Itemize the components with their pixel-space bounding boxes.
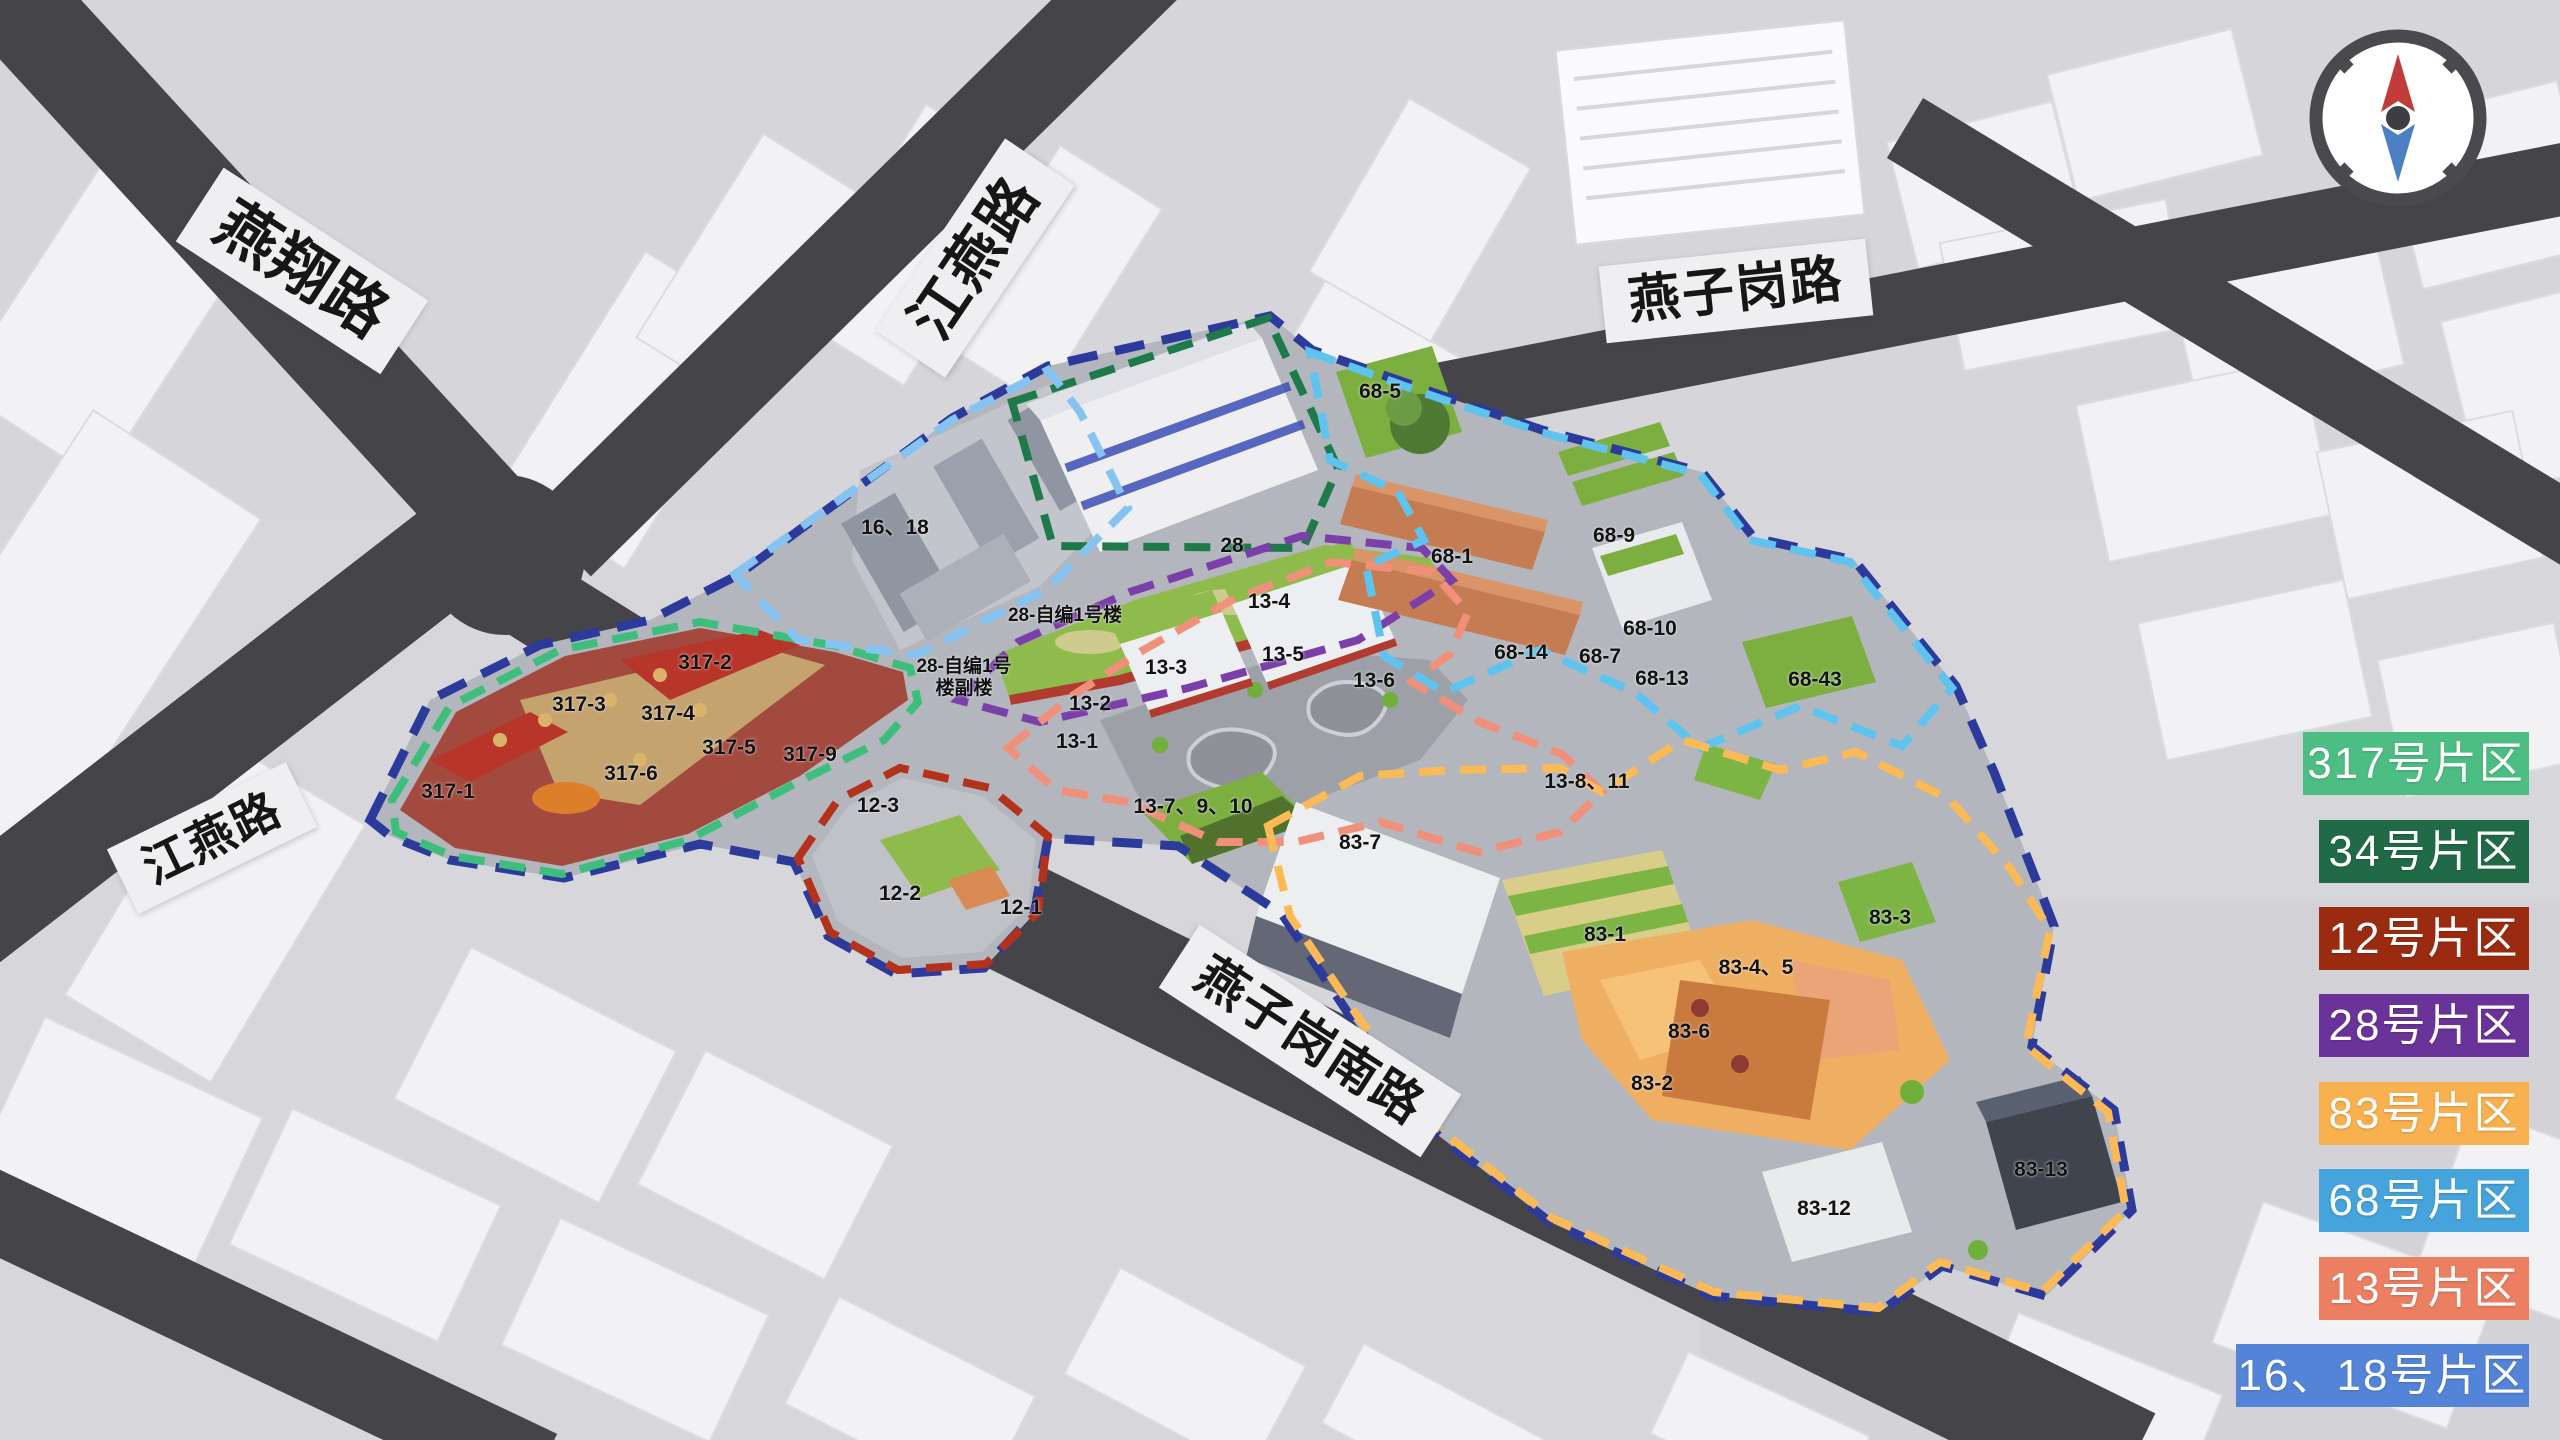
legend-item: 12号片区 — [2319, 907, 2529, 970]
compass-center-dot — [2386, 106, 2410, 130]
compass-icon — [2303, 23, 2493, 213]
legend-item: 13号片区 — [2319, 1257, 2529, 1320]
masterplan-rendering: 燕翔路江燕路燕子岗路江燕路燕子岗南路 317-1317-2317-3317-43… — [0, 0, 2560, 1440]
legend-item: 68号片区 — [2319, 1169, 2529, 1232]
legend-item: 34号片区 — [2319, 820, 2529, 883]
legend-item: 317号片区 — [2303, 732, 2529, 795]
legend-item: 83号片区 — [2319, 1082, 2529, 1145]
stadium-building — [1556, 20, 1865, 244]
legend-item: 16、18号片区 — [2236, 1344, 2529, 1407]
map-canvas — [0, 0, 2560, 1440]
legend-item: 28号片区 — [2319, 994, 2529, 1057]
